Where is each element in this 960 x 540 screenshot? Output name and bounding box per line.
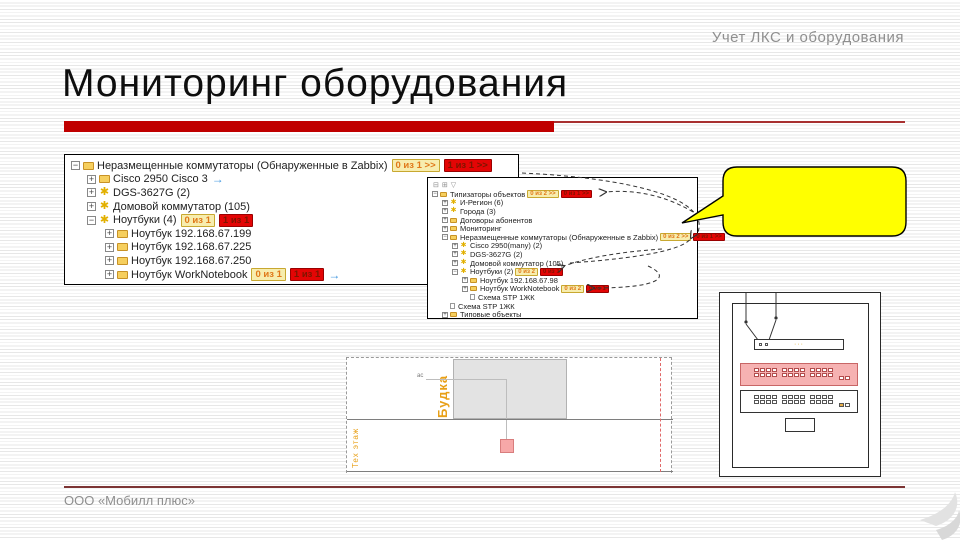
switch-port: [766, 400, 771, 404]
expand-toggle-icon: [462, 286, 468, 292]
switch-port: [822, 400, 827, 404]
switch-port: [800, 400, 805, 404]
switch-port: [822, 373, 827, 377]
switch-port: [794, 373, 799, 377]
switch-port: [816, 395, 821, 399]
switch-highlighted: [740, 363, 858, 386]
switch-port: [782, 373, 787, 377]
collapse-toggle-icon: [442, 234, 448, 240]
expand-toggle-icon: [105, 270, 114, 279]
count-badge-red: 0 из 1 >>: [693, 233, 724, 241]
document-icon: [470, 294, 475, 300]
expand-toggle-icon: [442, 208, 448, 214]
plan-point-label: ас: [417, 373, 423, 379]
switch-port: [794, 368, 799, 372]
slide-header: Учет ЛКС и оборудования: [712, 29, 904, 46]
tree-row: Договоры абонентов: [432, 216, 697, 225]
tree-item-label: Ноутбук 192.168.67.199: [131, 228, 251, 240]
patch-panel: ···: [754, 339, 844, 350]
tree-row: Неразмещенные коммутаторы (Обнаруженные …: [71, 159, 518, 173]
plan-equipment-marker: [500, 439, 514, 453]
rack-diagram: ···: [719, 292, 881, 477]
switch-port: [754, 400, 759, 404]
switch-port: [782, 368, 787, 372]
count-badge-red: 1 из 1 >>: [444, 159, 492, 172]
count-badge-red: 1 из 1: [219, 214, 253, 227]
switch-normal: [740, 390, 858, 413]
switch-port: [822, 368, 827, 372]
switch-port: [822, 395, 827, 399]
footer-divider-line: [64, 486, 905, 488]
switch-port: [754, 395, 759, 399]
filter-icon: ▽: [451, 181, 456, 189]
expand-toggle-icon: [442, 226, 448, 232]
document-icon: [450, 303, 455, 309]
count-badge-red: 0 из 1 >>: [561, 190, 592, 198]
port-group: [810, 395, 833, 404]
count-badge-yellow: 0 из 2: [561, 285, 584, 293]
tree-item-label: Ноутбук 192.168.67.225: [131, 241, 251, 253]
device-gear-icon: [460, 269, 467, 275]
expand-toggle-icon: [452, 251, 458, 257]
template-swirl-decoration: [900, 490, 960, 540]
tree-item-label: Cisco 2950 Cisco 3: [113, 173, 208, 185]
switch-port: [782, 400, 787, 404]
tree-row: Ноутбук WorkNotebook 0 из 2 0 из 1: [432, 285, 697, 294]
tree-item-label: Неразмещенные коммутаторы (Обнаруженные …: [97, 160, 388, 172]
collapse-toggle-icon: [452, 269, 458, 275]
switch-port: [845, 403, 850, 407]
tree-item-label: Ноутбук 192.168.67.250: [131, 255, 251, 267]
switch-port: [772, 373, 777, 377]
tree-row: И-Регион (6): [432, 199, 697, 208]
switch-port: [760, 395, 765, 399]
switch-port: [828, 373, 833, 377]
tree-row: Мониторинг: [432, 224, 697, 233]
callout-bubble: [682, 167, 906, 236]
title-underline-thin: [554, 121, 905, 123]
device-gear-icon: [460, 260, 467, 266]
tree-row: Схема STP 1ЖК: [432, 293, 697, 302]
rack-small-unit: [785, 418, 815, 432]
switch-port: [816, 373, 821, 377]
switch-port: [839, 376, 844, 380]
folder-icon: [117, 230, 128, 238]
goto-arrow-icon: [212, 172, 224, 186]
folder-icon: [450, 235, 457, 240]
plan-room-block: [453, 359, 567, 419]
expand-toggle-icon: [105, 256, 114, 265]
switch-port: [800, 368, 805, 372]
switch-port: [828, 400, 833, 404]
folder-icon: [83, 162, 94, 170]
expand-toggle-icon: [105, 229, 114, 238]
tree-row: Ноутбук 192.168.67.98: [432, 276, 697, 285]
tree-row: Домовой коммутатор (105): [432, 259, 697, 268]
device-gear-icon: [99, 216, 110, 225]
switch-port: [772, 368, 777, 372]
plan-floor-top-line: [347, 419, 673, 420]
device-gear-icon: [450, 208, 457, 214]
count-badge-yellow: 0 из 1 >>: [392, 159, 440, 172]
switch-port: [760, 400, 765, 404]
slide: Учет ЛКС и оборудования Мониторинг обору…: [0, 0, 960, 540]
switch-port: [816, 400, 821, 404]
switch-port: [766, 395, 771, 399]
patch-panel-label: ···: [755, 340, 843, 349]
expand-toggle-icon: [442, 312, 448, 318]
folder-icon: [99, 175, 110, 183]
tree-item-label: Ноутбук WorkNotebook: [131, 269, 247, 281]
folder-icon: [117, 257, 128, 265]
count-badge-red: 1 из 1: [290, 268, 324, 281]
switch-port: [766, 368, 771, 372]
switch-port: [816, 368, 821, 372]
switch-port: [760, 368, 765, 372]
expand-all-icon: ⊞: [442, 181, 448, 189]
tree-row: Типизаторы объектов 0 из 2 >> 0 из 1 >>: [432, 190, 697, 199]
tree-row: DGS-3627G (2): [432, 250, 697, 259]
expand-toggle-icon: [452, 243, 458, 249]
expand-toggle-icon: [105, 243, 114, 252]
folder-icon: [117, 271, 128, 279]
switch-port: [754, 373, 759, 377]
plan-floor-label: Тех этаж: [351, 426, 360, 468]
switch-port: [788, 368, 793, 372]
tree-row: Схема STP 1ЖК: [432, 302, 697, 311]
switch-port: [772, 395, 777, 399]
switch-port: [828, 395, 833, 399]
switch-port: [810, 373, 815, 377]
count-badge-yellow: 0 из 2: [515, 268, 538, 276]
tree-item-label: Домовой коммутатор (105): [113, 201, 250, 213]
device-gear-icon: [450, 200, 457, 206]
plan-floor-bottom-line: [347, 471, 673, 472]
switch-port: [782, 395, 787, 399]
switch-port: [828, 368, 833, 372]
port-group: [810, 368, 833, 377]
uplink-port-group: [839, 403, 850, 407]
expand-toggle-icon: [87, 175, 96, 184]
device-gear-icon: [99, 202, 110, 211]
goto-arrow-icon: [328, 268, 340, 282]
monitoring-tree-screenshot-2: ⊟ ⊞ ▽ Типизаторы объектов 0 из 2 >> 0 из…: [427, 177, 698, 319]
collapse-toggle-icon: [432, 191, 438, 197]
plan-room-label: Будка: [435, 364, 450, 418]
folder-icon: [470, 286, 477, 291]
switch-port: [800, 395, 805, 399]
switch-port: [810, 400, 815, 404]
port-group: [782, 395, 805, 404]
count-badge-yellow: 0 из 1: [251, 268, 285, 281]
tree-row: Города (3): [432, 207, 697, 216]
switch-port: [788, 400, 793, 404]
expand-toggle-icon: [462, 277, 468, 283]
footer-company-name: ООО «Мобилл плюс»: [64, 493, 195, 508]
switch-port: [788, 395, 793, 399]
count-badge-yellow: 0 из 2 >>: [660, 233, 691, 241]
count-badge-red: 0 из 1: [586, 285, 609, 293]
switch-port: [845, 376, 850, 380]
switch-port: [810, 395, 815, 399]
expand-toggle-icon: [87, 188, 96, 197]
collapse-all-icon: ⊟: [433, 181, 439, 189]
tree-row: Cisco 2950(many) (2): [432, 242, 697, 251]
plan-connector-horizontal: [426, 379, 506, 380]
folder-icon: [117, 243, 128, 251]
device-gear-icon: [460, 251, 467, 257]
tree-row: Ноутбуки (2) 0 из 2 0 из 1: [432, 267, 697, 276]
floor-plan-diagram: Будка ас Тех этаж: [346, 357, 672, 473]
plan-connector-vertical: [506, 379, 507, 440]
expand-toggle-icon: [442, 200, 448, 206]
collapse-toggle-icon: [71, 161, 80, 170]
tree-item-label: Ноутбуки (4): [113, 214, 177, 226]
collapse-toggle-icon: [87, 216, 96, 225]
folder-icon: [440, 192, 447, 197]
title-underline-bar: [64, 121, 554, 132]
port-group: [754, 368, 777, 377]
switch-port: [810, 368, 815, 372]
switch-port: [839, 403, 844, 407]
plan-boundary-dashed-line: [660, 358, 661, 472]
switch-port: [772, 400, 777, 404]
port-group: [782, 368, 805, 377]
expand-toggle-icon: [87, 202, 96, 211]
spacer: [442, 303, 448, 309]
expand-toggle-icon: [442, 217, 448, 223]
tree-row: Типовые объекты: [432, 310, 697, 319]
folder-icon: [450, 226, 457, 231]
folder-icon: [450, 312, 457, 317]
port-group: [754, 395, 777, 404]
device-gear-icon: [460, 243, 467, 249]
switch-port: [794, 395, 799, 399]
tree-item-label: Типовые объекты: [460, 310, 522, 319]
device-gear-icon: [99, 188, 110, 197]
switch-port: [794, 400, 799, 404]
expand-toggle-icon: [452, 260, 458, 266]
count-badge-yellow: 0 из 2 >>: [527, 190, 558, 198]
switch-port: [766, 373, 771, 377]
switch-port: [800, 373, 805, 377]
page-title: Мониторинг оборудования: [62, 62, 568, 106]
switch-port: [754, 368, 759, 372]
tree-toolbar: ⊟ ⊞ ▽: [433, 181, 697, 189]
count-badge-yellow: 0 из 1: [181, 214, 215, 227]
uplink-port-group: [839, 376, 850, 380]
spacer: [462, 294, 468, 300]
switch-port: [760, 373, 765, 377]
folder-icon: [470, 278, 477, 283]
folder-icon: [450, 218, 457, 223]
tree-item-label: DGS-3627G (2): [113, 187, 190, 199]
count-badge-red: 0 из 1: [540, 268, 563, 276]
switch-port: [788, 373, 793, 377]
tree-row: Неразмещенные коммутаторы (Обнаруженные …: [432, 233, 697, 242]
